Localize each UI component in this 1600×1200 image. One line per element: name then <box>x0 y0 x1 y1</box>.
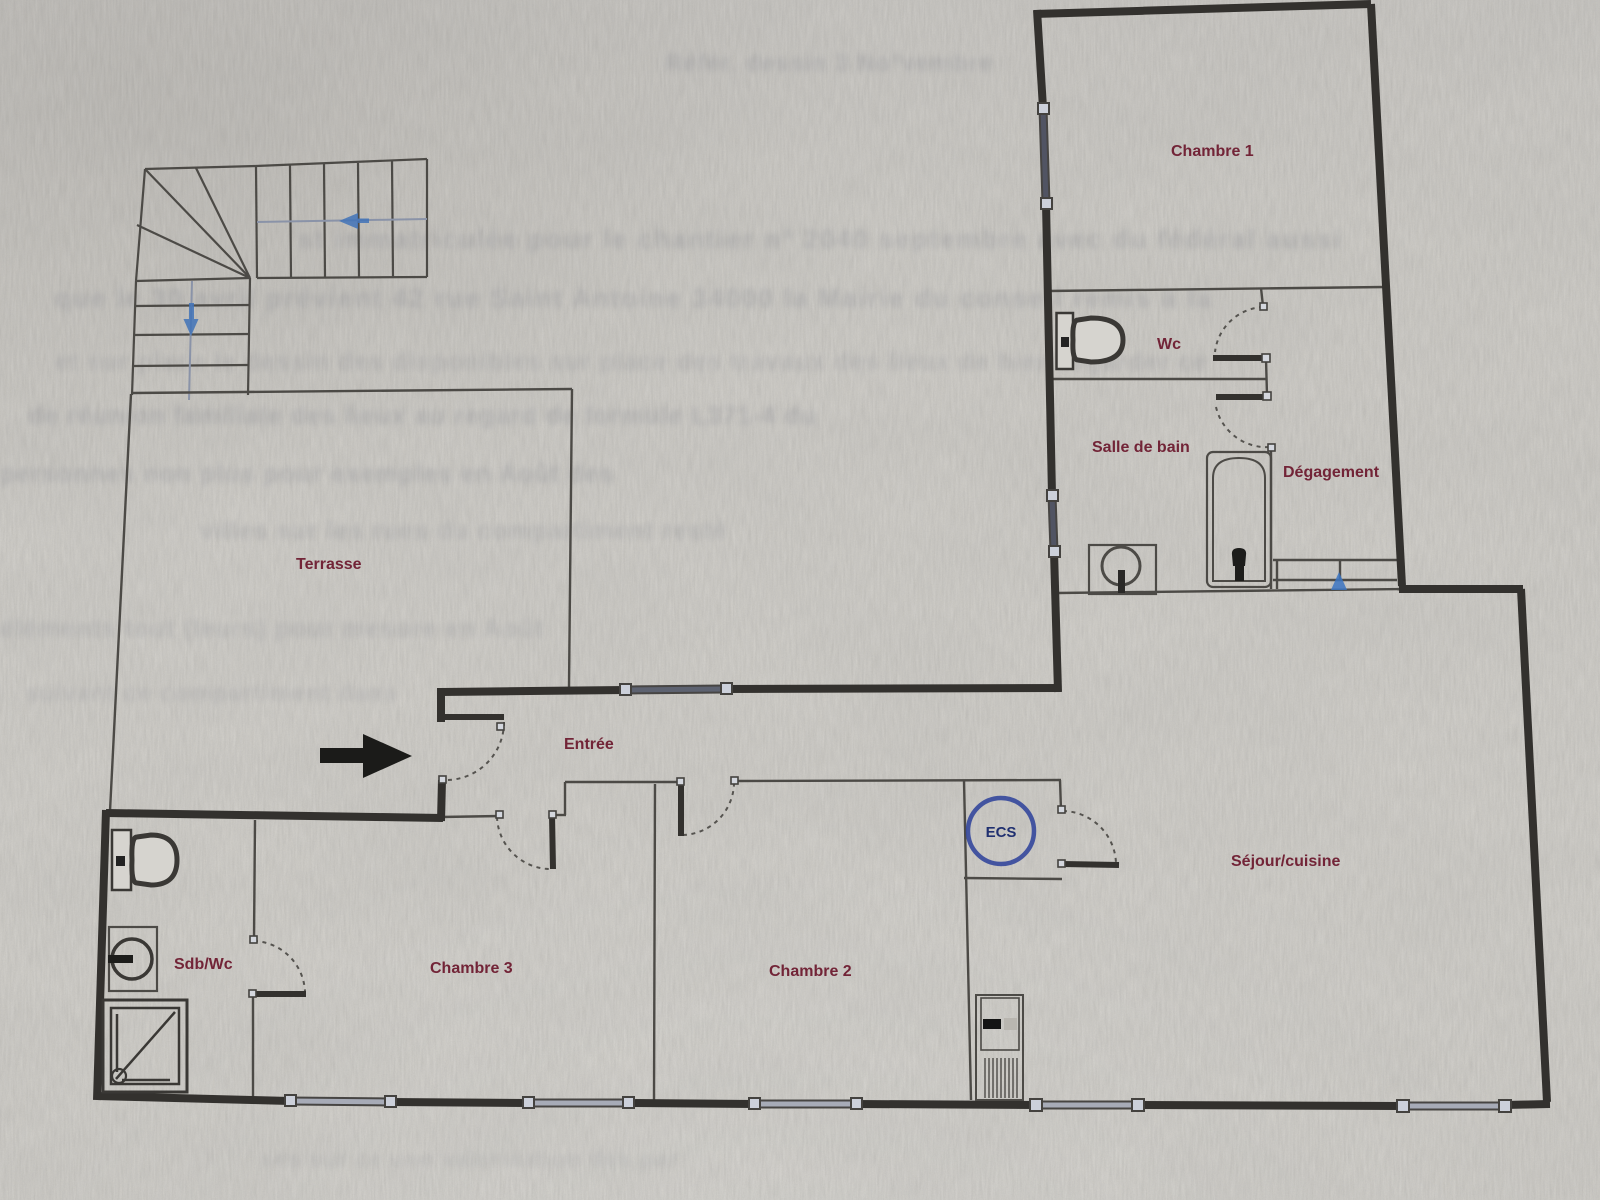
svg-text:Chambre 3: Chambre 3 <box>430 960 513 977</box>
svg-text:ECS: ECS <box>986 824 1017 841</box>
svg-text:Terrasse: Terrasse <box>296 556 362 573</box>
svg-text:Chambre 1: Chambre 1 <box>1171 143 1254 160</box>
svg-text:Entrée: Entrée <box>564 736 614 753</box>
svg-text:Dégagement: Dégagement <box>1283 464 1380 481</box>
svg-text:Chambre 2: Chambre 2 <box>769 963 852 980</box>
svg-text:Sdb/Wc: Sdb/Wc <box>174 956 233 973</box>
svg-text:Séjour/cuisine: Séjour/cuisine <box>1231 853 1340 870</box>
svg-text:Salle de bain: Salle de bain <box>1092 439 1190 456</box>
svg-text:Wc: Wc <box>1157 336 1181 353</box>
